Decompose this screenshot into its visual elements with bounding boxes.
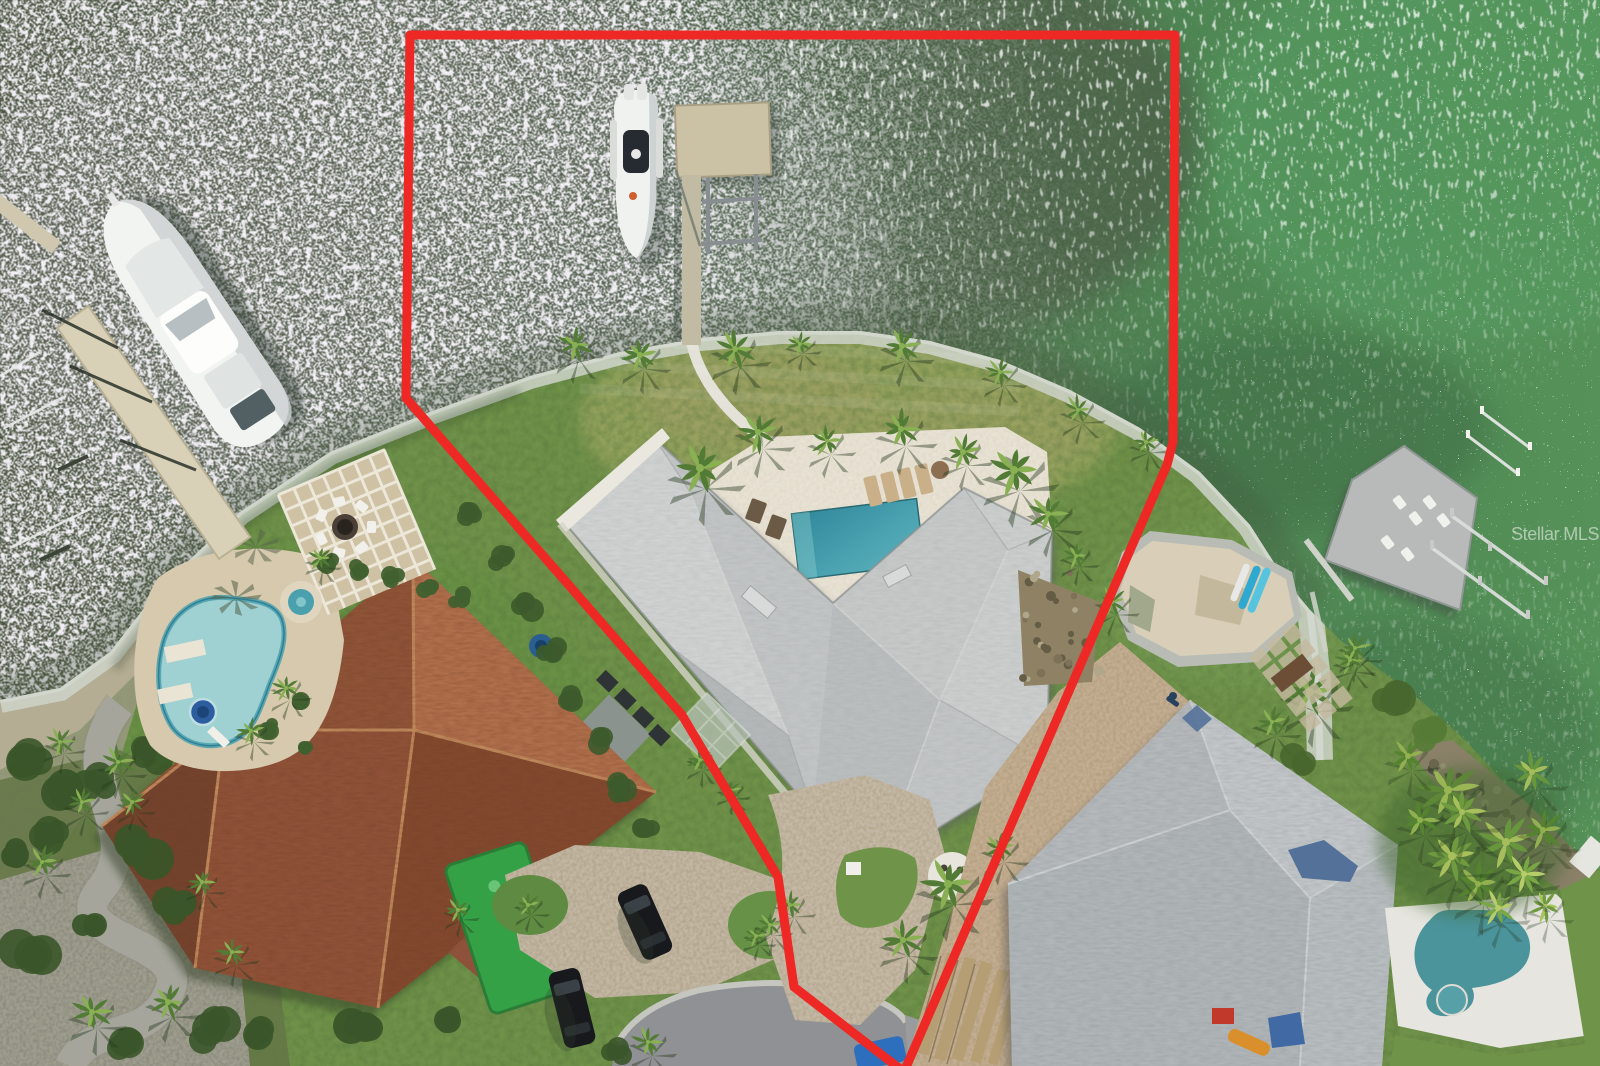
svg-text:StellarMLS: StellarMLS	[1511, 524, 1599, 544]
